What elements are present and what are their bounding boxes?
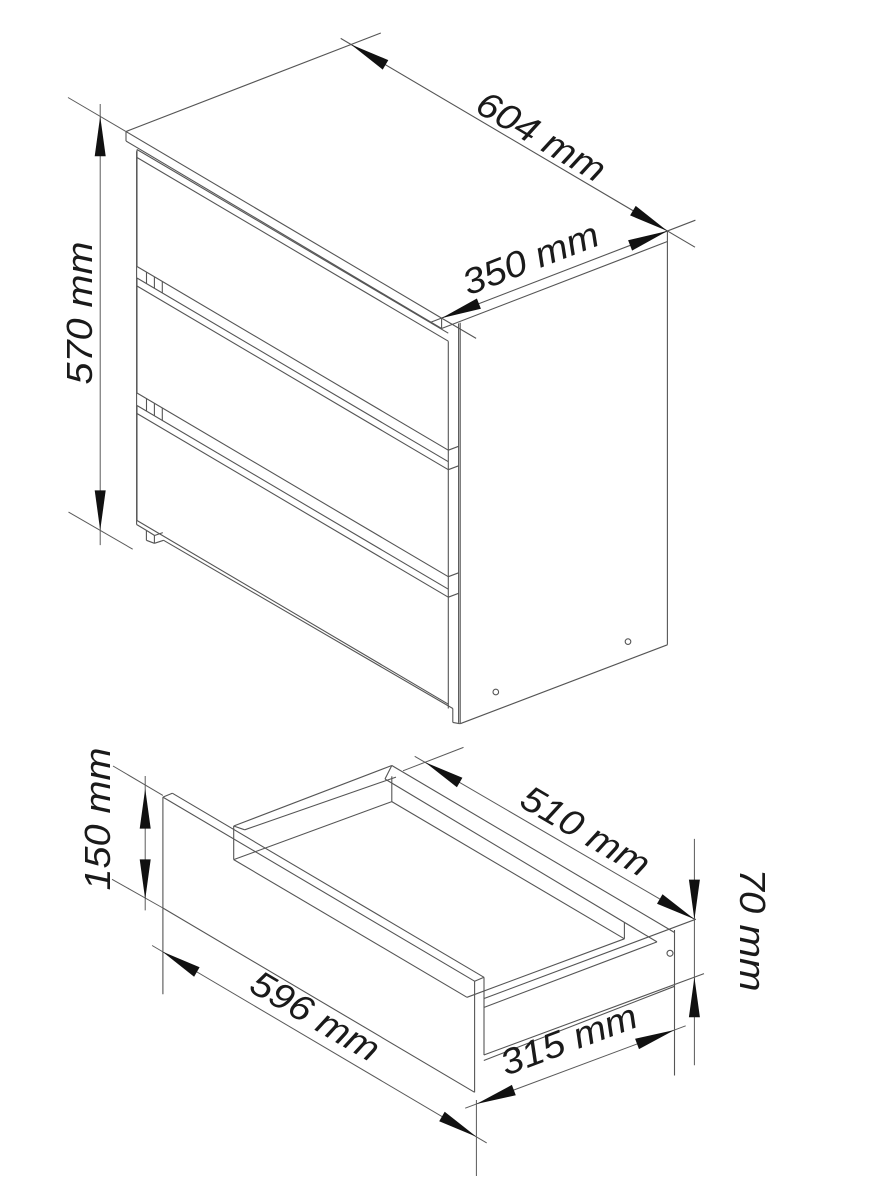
svg-text:350 mm: 350 mm bbox=[456, 213, 604, 303]
svg-text:596 mm: 596 mm bbox=[243, 962, 387, 1070]
svg-text:315 mm: 315 mm bbox=[494, 995, 642, 1083]
svg-text:604 mm: 604 mm bbox=[469, 82, 613, 190]
svg-text:70 mm: 70 mm bbox=[732, 869, 773, 992]
svg-text:150 mm: 150 mm bbox=[77, 748, 118, 891]
svg-text:570 mm: 570 mm bbox=[59, 242, 100, 385]
